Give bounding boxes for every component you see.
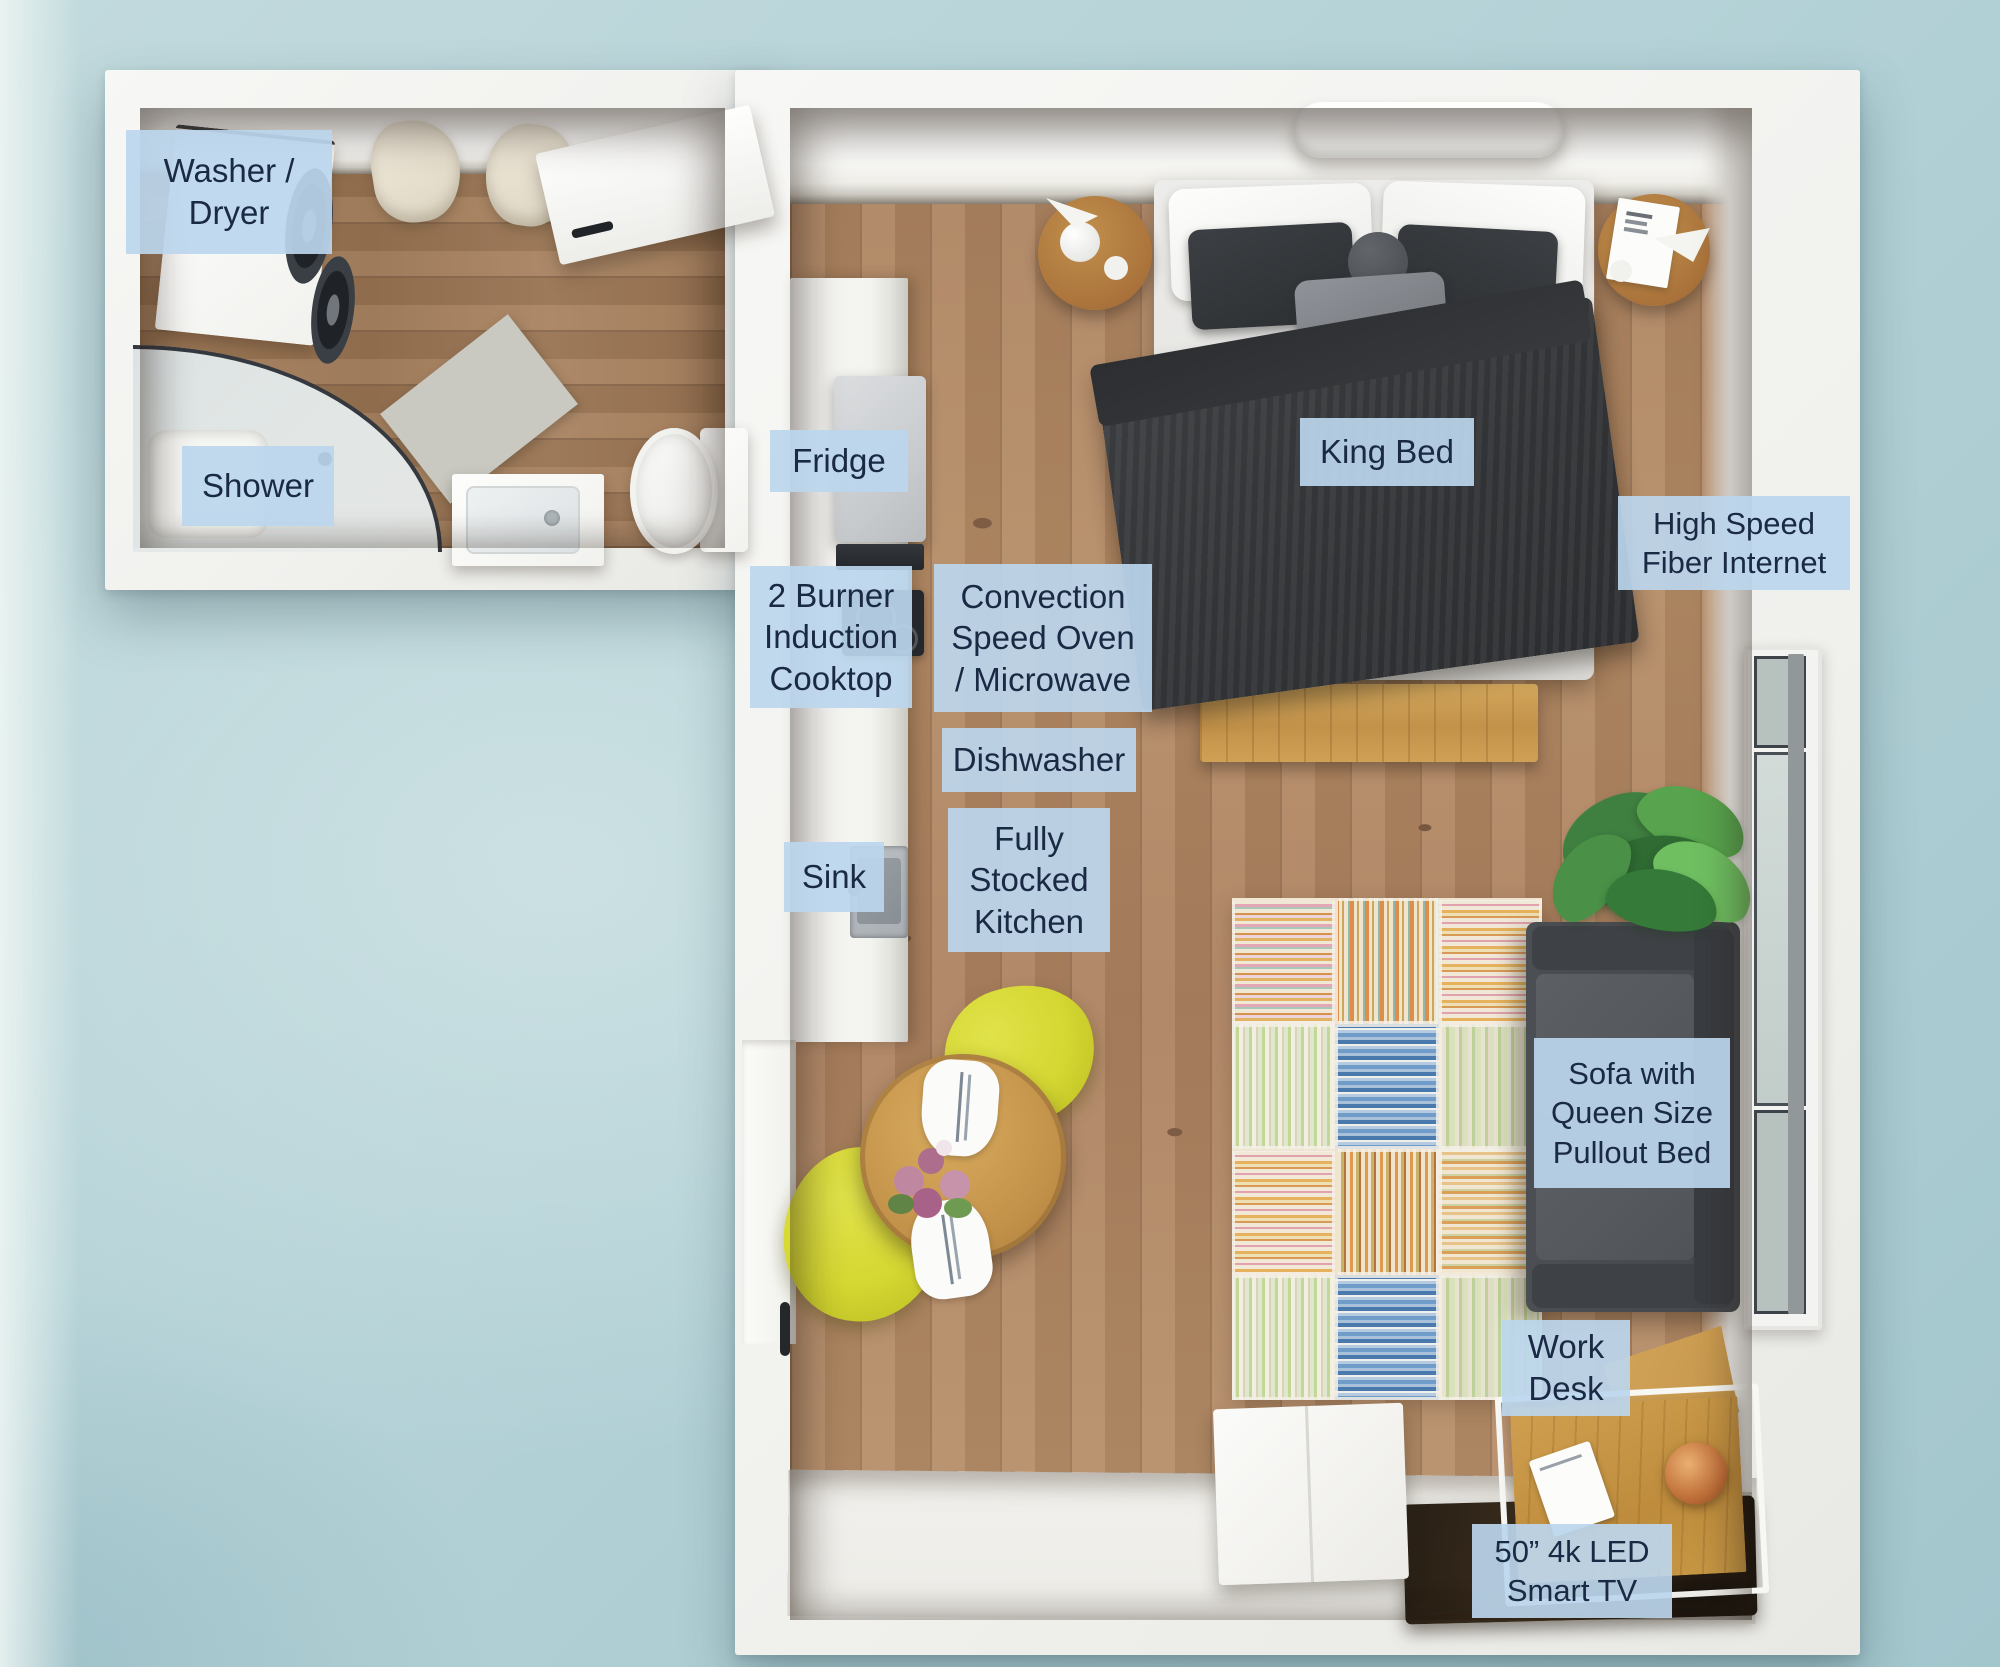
sink-basin bbox=[466, 486, 580, 554]
area-rug bbox=[1232, 898, 1542, 1400]
nightstand-left bbox=[1038, 196, 1152, 310]
entry-door bbox=[742, 1040, 796, 1344]
toilet-bowl bbox=[630, 428, 718, 554]
lamp-arm-icon bbox=[1046, 198, 1098, 228]
label-washer-dryer: Washer / Dryer bbox=[126, 130, 332, 254]
window-blind bbox=[1788, 654, 1804, 1314]
rug-patch bbox=[1232, 1149, 1335, 1275]
door-handle-icon bbox=[780, 1302, 790, 1356]
label-fiber-internet: High Speed Fiber Internet bbox=[1618, 496, 1850, 590]
label-dishwasher: Dishwasher bbox=[942, 728, 1136, 792]
notepad-icon bbox=[1529, 1441, 1616, 1537]
rug-patch bbox=[1335, 898, 1438, 1024]
tv-stand bbox=[1213, 1403, 1409, 1586]
label-fridge: Fridge bbox=[770, 430, 908, 492]
cutlery-icon bbox=[964, 1075, 972, 1141]
door-handle-icon bbox=[571, 221, 614, 239]
trinket-dish-icon bbox=[1610, 260, 1632, 282]
rug-patch bbox=[1232, 1275, 1335, 1401]
label-shower: Shower bbox=[182, 446, 334, 526]
table-lamp-icon bbox=[1060, 222, 1100, 262]
label-king-bed: King Bed bbox=[1300, 418, 1474, 486]
label-sofa-pullout: Sofa with Queen Size Pullout Bed bbox=[1534, 1038, 1730, 1188]
book-text-line bbox=[1624, 227, 1648, 235]
rug-patch bbox=[1232, 1024, 1335, 1150]
leaf-icon bbox=[944, 1198, 972, 1218]
rug-patch bbox=[1335, 1024, 1438, 1150]
rug-patch bbox=[1335, 1275, 1438, 1401]
label-sink: Sink bbox=[784, 842, 884, 912]
nightstand-right bbox=[1598, 194, 1710, 306]
potted-plant bbox=[1540, 782, 1750, 932]
flower-icon bbox=[936, 1140, 952, 1156]
dining-table bbox=[860, 1054, 1066, 1260]
duvet bbox=[1094, 297, 1640, 711]
stand-seam bbox=[1305, 1406, 1314, 1582]
notepad-line bbox=[1539, 1454, 1582, 1471]
trinket-dish-icon bbox=[1104, 256, 1128, 280]
label-fully-stocked-kitchen: Fully Stocked Kitchen bbox=[948, 808, 1110, 952]
rug-patch bbox=[1335, 1149, 1438, 1275]
label-smart-tv: 50” 4k LED Smart TV bbox=[1472, 1524, 1672, 1618]
vanity-sink bbox=[452, 474, 604, 566]
flower-icon bbox=[912, 1188, 942, 1218]
flower-bouquet bbox=[888, 1140, 980, 1232]
leaf-icon bbox=[888, 1194, 914, 1214]
book-text-line bbox=[1625, 219, 1647, 226]
headboard-light bbox=[1294, 102, 1564, 158]
cutlery-icon bbox=[956, 1072, 964, 1142]
desk-lamp-icon bbox=[1664, 1441, 1729, 1506]
flower-icon bbox=[940, 1170, 970, 1200]
book-text-line bbox=[1626, 211, 1652, 219]
label-cooktop: 2 Burner Induction Cooktop bbox=[750, 566, 912, 708]
rug-patch bbox=[1232, 898, 1335, 1024]
window bbox=[1744, 646, 1822, 1330]
label-work-desk: Work Desk bbox=[1502, 1320, 1630, 1416]
faucet-icon bbox=[544, 510, 560, 526]
floor-plan-canvas: Washer / Dryer Shower Fridge 2 Burner In… bbox=[0, 0, 2000, 1667]
label-convection-oven: Convection Speed Oven / Microwave bbox=[934, 564, 1152, 712]
